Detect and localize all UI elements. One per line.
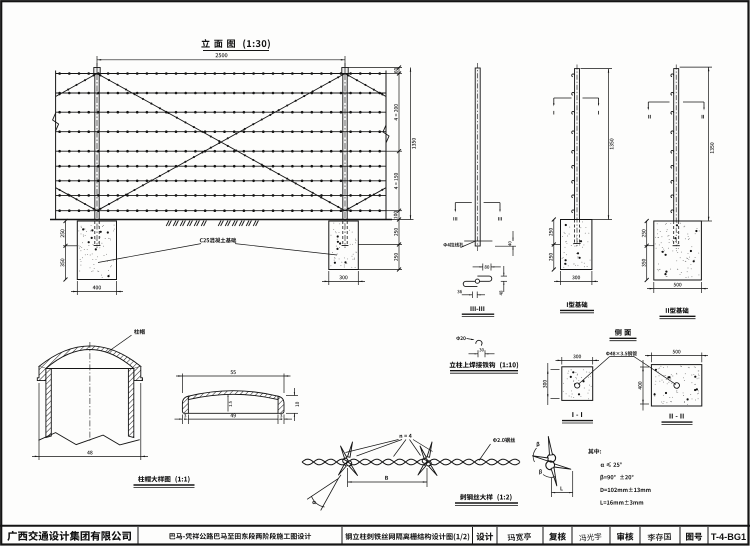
svg-text:T-4-BG1: T-4-BG1 — [711, 532, 746, 542]
